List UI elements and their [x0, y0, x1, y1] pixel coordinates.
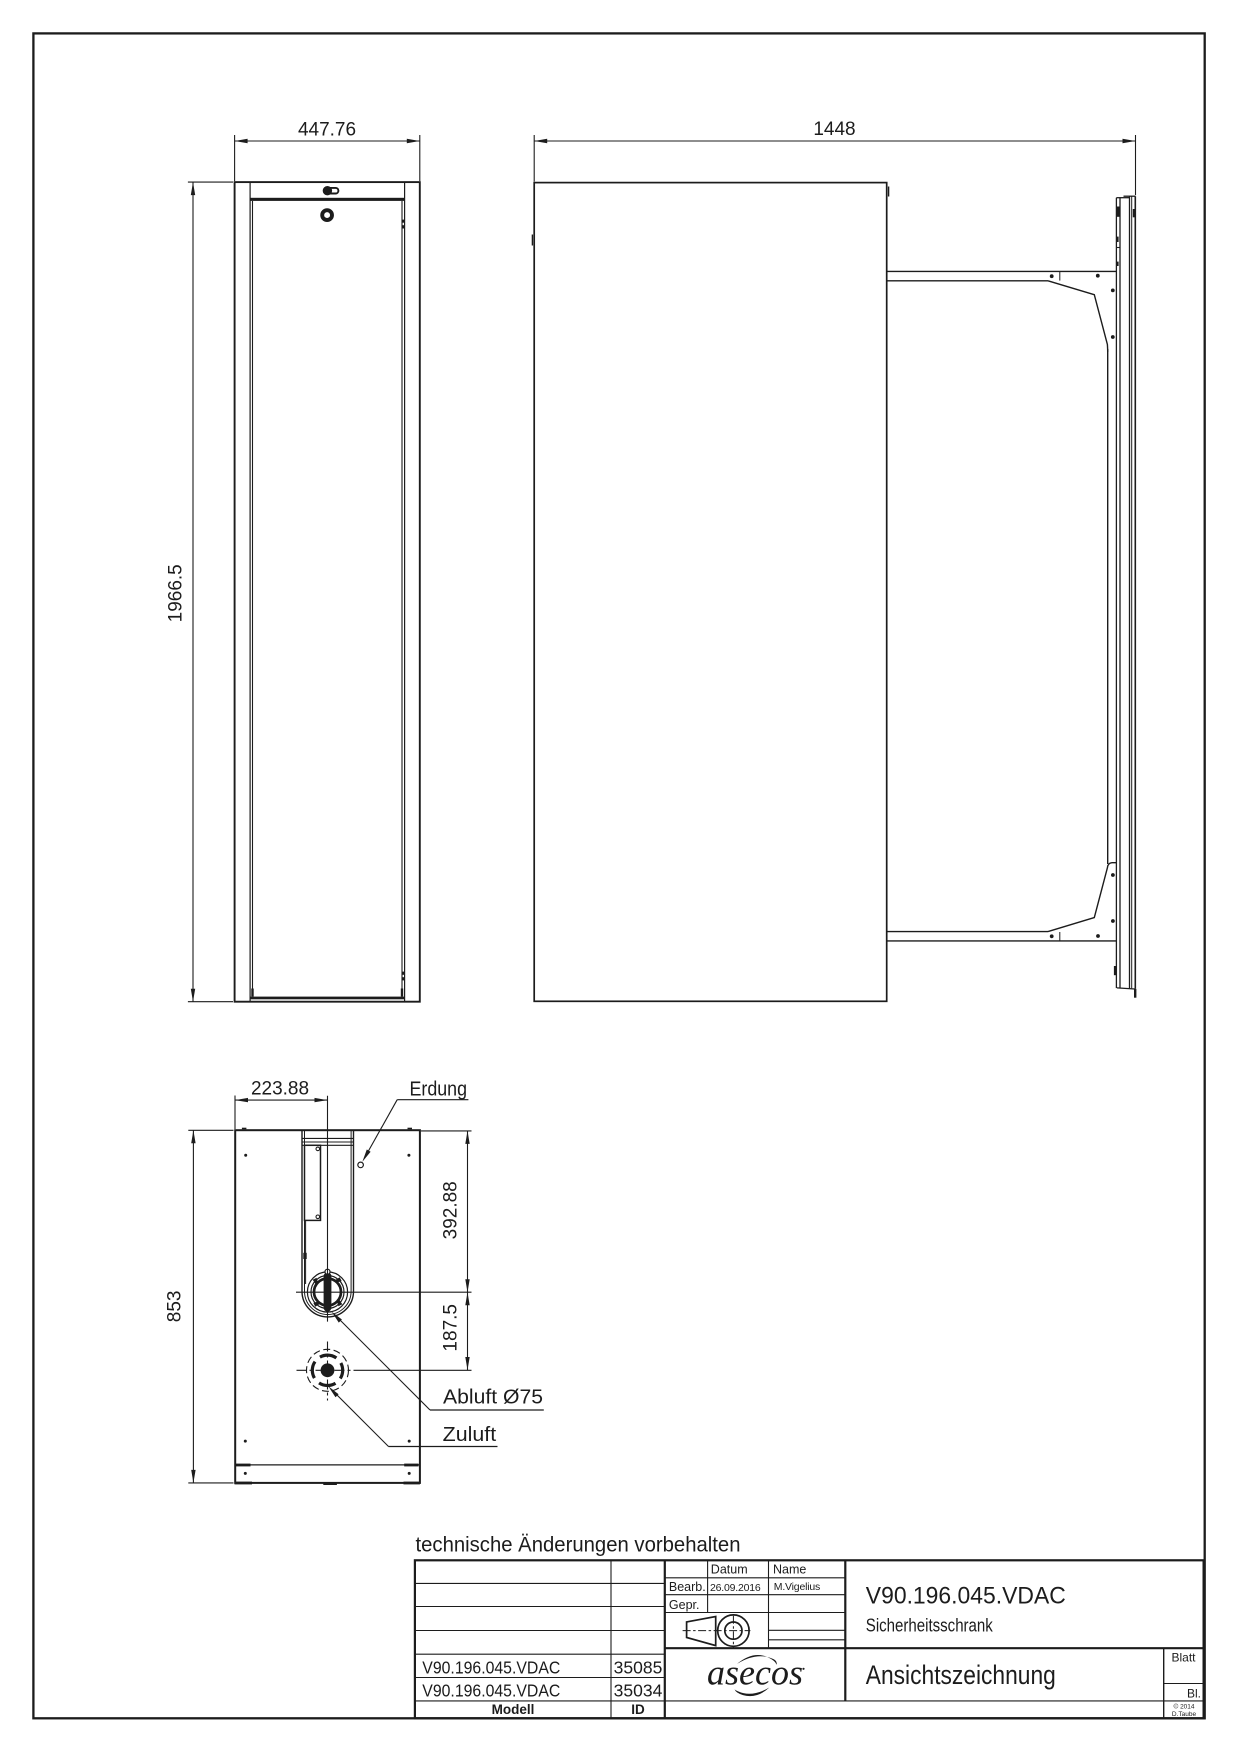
svg-text:Zuluft: Zuluft — [443, 1424, 497, 1446]
svg-text:Modell: Modell — [492, 1702, 535, 1717]
svg-text:Datum: Datum — [711, 1563, 748, 1577]
svg-text:V90.196.045.VDAC: V90.196.045.VDAC — [422, 1681, 560, 1701]
svg-text:M.Vigelius: M.Vigelius — [774, 1581, 820, 1593]
svg-text:V90.196.045.VDAC: V90.196.045.VDAC — [866, 1582, 1066, 1609]
svg-text:Blatt: Blatt — [1171, 1651, 1196, 1665]
svg-text:technische Änderungen vorbehal: technische Änderungen vorbehalten — [416, 1534, 741, 1557]
svg-text:1448: 1448 — [813, 119, 855, 140]
svg-text:asecos: asecos — [707, 1652, 803, 1692]
svg-text:Sicherheitsschrank: Sicherheitsschrank — [866, 1614, 994, 1635]
svg-text:853: 853 — [165, 1291, 186, 1323]
svg-text:Bearb.: Bearb. — [669, 1580, 706, 1594]
svg-text:© 2014: © 2014 — [1173, 1702, 1194, 1710]
svg-text:V90.196.045.VDAC: V90.196.045.VDAC — [422, 1658, 560, 1678]
svg-text:187.5: 187.5 — [441, 1304, 462, 1352]
svg-text:26.09.2016: 26.09.2016 — [710, 1582, 761, 1594]
svg-text:D.Taube: D.Taube — [1172, 1711, 1197, 1718]
svg-text:392.88: 392.88 — [441, 1181, 462, 1239]
svg-text:Bl.: Bl. — [1187, 1686, 1201, 1700]
svg-text:1966.5: 1966.5 — [166, 564, 187, 622]
svg-text:Ansichtszeichnung: Ansichtszeichnung — [866, 1660, 1056, 1690]
svg-text:447.76: 447.76 — [298, 120, 356, 141]
svg-text:ID: ID — [631, 1702, 645, 1717]
svg-text:Abluft Ø75: Abluft Ø75 — [443, 1387, 543, 1409]
svg-text:Gepr.: Gepr. — [669, 1598, 700, 1612]
svg-text:Erdung: Erdung — [410, 1078, 468, 1100]
svg-text:35085: 35085 — [614, 1658, 663, 1678]
svg-text:Name: Name — [773, 1563, 806, 1577]
svg-text:35034: 35034 — [614, 1681, 663, 1701]
svg-text:223.88: 223.88 — [251, 1078, 309, 1099]
